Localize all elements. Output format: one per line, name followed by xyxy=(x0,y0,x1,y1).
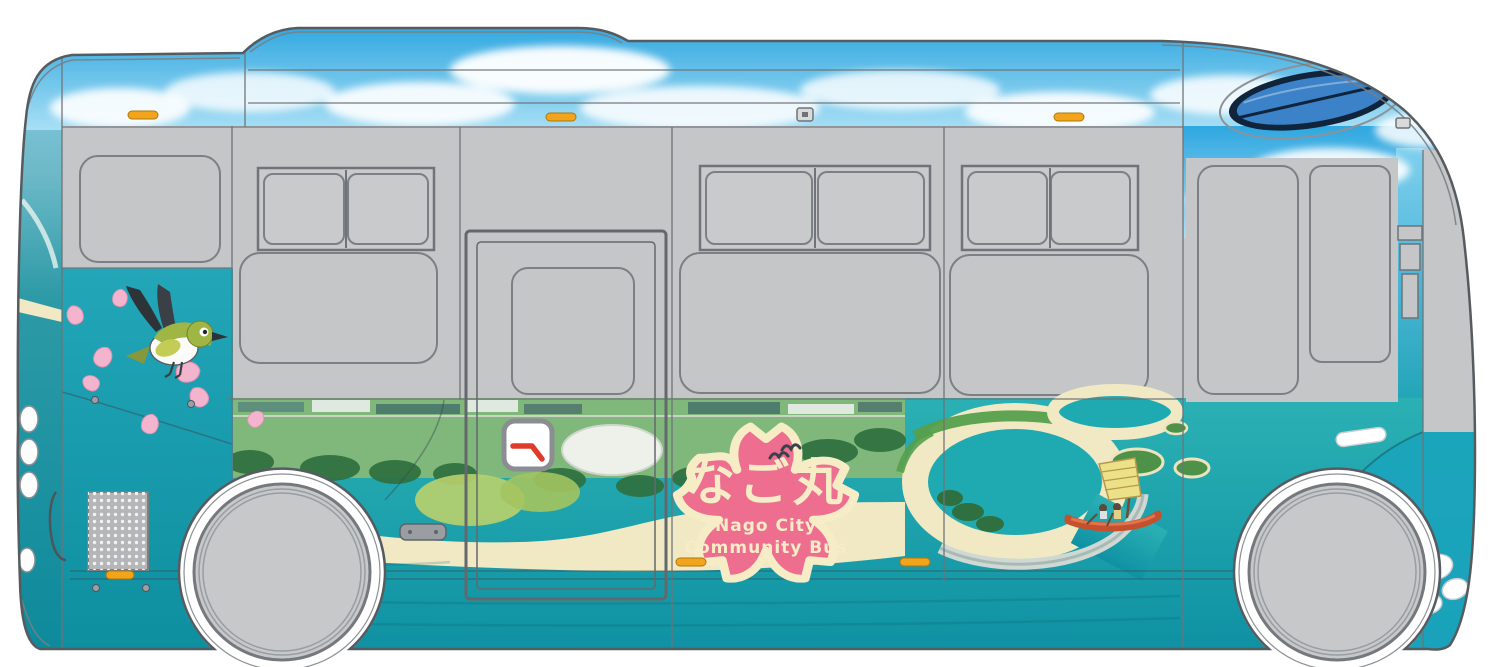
logo-text-english-1: Nago City xyxy=(715,516,817,536)
rear-light xyxy=(19,548,35,572)
marker-light xyxy=(106,571,134,579)
door-release-icon xyxy=(504,421,552,469)
logo-text-english-2: Community Bus xyxy=(685,538,848,558)
hinge xyxy=(1398,226,1422,240)
rear-window-section xyxy=(62,126,233,268)
marker-light xyxy=(1054,113,1084,121)
window-2 xyxy=(700,166,930,250)
upper-lagoon xyxy=(1053,390,1177,434)
logo-text-japanese: なご丸 xyxy=(685,454,847,512)
bird-eye xyxy=(203,330,207,334)
grass-field xyxy=(500,472,580,512)
window-3 xyxy=(962,166,1138,250)
fitting-bolt xyxy=(434,530,438,534)
cloud xyxy=(325,82,515,126)
windshield-blank xyxy=(1186,158,1398,402)
bus-livery-illustration: なご丸 Nago City Community Bus xyxy=(0,0,1500,667)
step-fitting xyxy=(400,524,446,540)
tire xyxy=(194,484,370,660)
screw xyxy=(143,585,150,592)
rear-light xyxy=(20,439,38,465)
vent-grille xyxy=(88,492,148,570)
screw xyxy=(188,401,195,408)
rear-light xyxy=(20,472,38,498)
marker-light xyxy=(900,558,930,566)
hinge xyxy=(1402,274,1418,318)
cloud xyxy=(580,86,820,130)
dome-building xyxy=(562,425,662,475)
roof-latch xyxy=(1396,118,1410,128)
marker-light xyxy=(676,558,706,566)
cloud xyxy=(1375,112,1485,148)
bus-side-view: なご丸 Nago City Community Bus xyxy=(0,0,1500,667)
small-island xyxy=(1175,459,1209,477)
tire xyxy=(1249,484,1425,660)
screw xyxy=(92,397,99,404)
marker-light xyxy=(128,111,158,119)
cloud xyxy=(800,70,1000,110)
fitting-bolt xyxy=(408,530,412,534)
hinge xyxy=(1400,244,1420,270)
marker-light xyxy=(546,113,576,121)
rear-light xyxy=(20,406,38,432)
rower xyxy=(1099,504,1107,512)
screw xyxy=(93,585,100,592)
cloud xyxy=(165,72,335,112)
window-1 xyxy=(258,168,434,250)
roof-speaker xyxy=(797,108,813,121)
rower xyxy=(1113,503,1121,511)
